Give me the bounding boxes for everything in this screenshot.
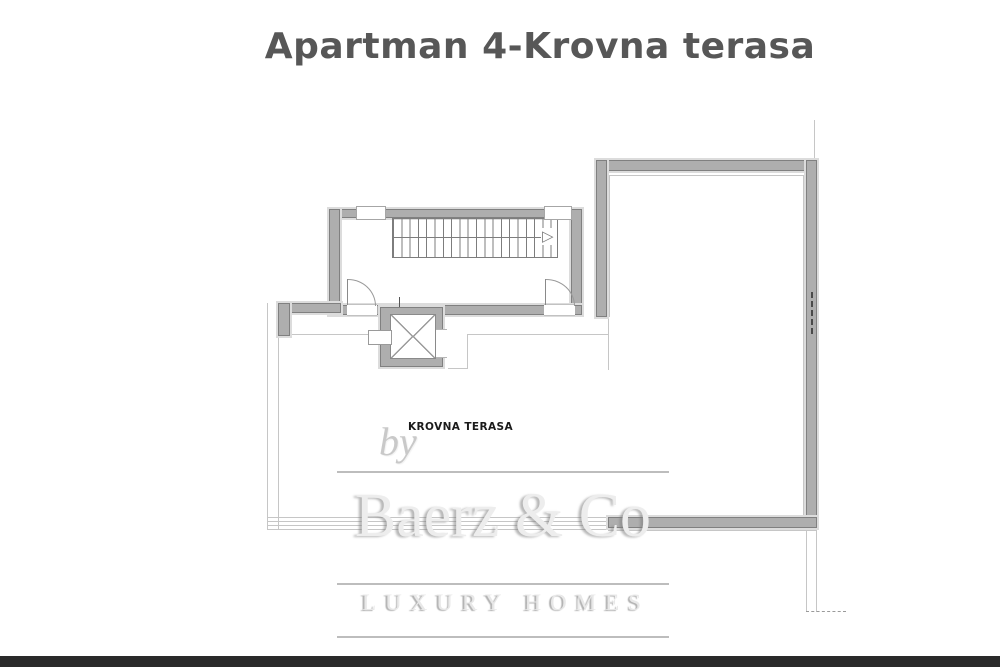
- roof-edge-step-vertical: [467, 334, 468, 369]
- elevator-opening-right: [436, 329, 447, 358]
- terrace-wall-dashed-marker: [811, 292, 813, 334]
- roof-edge-line-mid: [467, 334, 608, 335]
- terrace-wall-right: [806, 160, 817, 528]
- page-title: Apartman 4-Krovna terasa: [200, 26, 880, 67]
- terrace-parapet-line-outer: [267, 303, 268, 530]
- bottom-dark-bar: [0, 656, 1000, 667]
- elevator-cabin-x: [390, 314, 436, 359]
- watermark-rule-bottom: [337, 636, 669, 638]
- watermark-tagline-text: LUXURY HOMES: [327, 590, 679, 616]
- wall-tick-mark: [399, 297, 400, 307]
- boundary-dash-bottom-right: [806, 611, 846, 612]
- staircase-walk-line: [392, 237, 544, 238]
- elevator-door-left: [368, 330, 392, 345]
- roof-edge-line-left: [288, 334, 380, 335]
- terrace-wall-top: [596, 160, 817, 171]
- terrace-parapet-line-inner: [278, 336, 279, 530]
- room-label-krovna-terasa: KROVNA TERASA: [408, 421, 513, 433]
- roof-edge-step-bottom: [448, 368, 468, 369]
- door-swing-arc-left: [348, 279, 376, 306]
- roof-edge-line-right: [608, 318, 609, 370]
- terrace-wall-inner-face-left: [609, 175, 610, 317]
- stair-core-wall-left: [329, 209, 340, 315]
- terrace-wall-inner-face-top: [606, 175, 806, 176]
- staircase-direction-arrow-icon: ▷: [541, 228, 555, 245]
- watermark-brand-text: Baerz & Co: [327, 470, 679, 563]
- terrace-wall-inner-face-right: [803, 175, 804, 517]
- boundary-line-top-right: [814, 120, 815, 161]
- watermark-rule-middle: [337, 583, 669, 585]
- staircase: [392, 218, 558, 258]
- boundary-line-bottom-right-b: [816, 528, 817, 612]
- floor-plan-canvas: Apartman 4-Krovna terasa ▷: [0, 0, 1000, 667]
- terrace-wall-left: [596, 160, 607, 317]
- left-stub-wall-vertical: [278, 303, 290, 336]
- watermark: by Baerz & Co LUXURY HOMES: [327, 418, 679, 650]
- boundary-line-bottom-right-a: [806, 528, 807, 612]
- window-top-right: [544, 206, 572, 220]
- window-top-left: [356, 206, 386, 220]
